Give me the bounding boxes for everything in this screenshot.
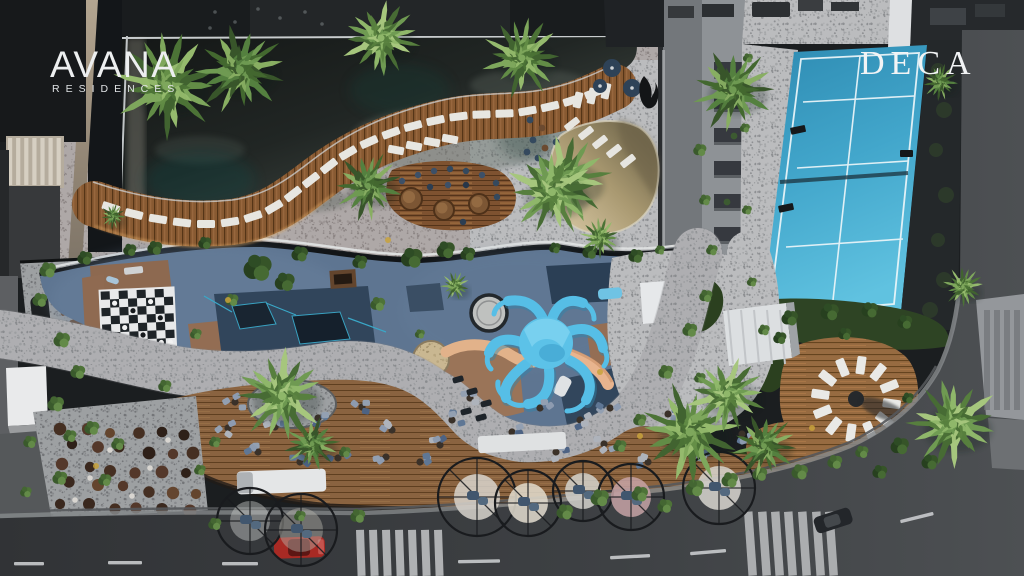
svg-text:AVANA: AVANA [50, 44, 177, 85]
svg-text:RESIDENCES: RESIDENCES [52, 83, 180, 95]
svg-text:DECA: DECA [860, 45, 977, 82]
